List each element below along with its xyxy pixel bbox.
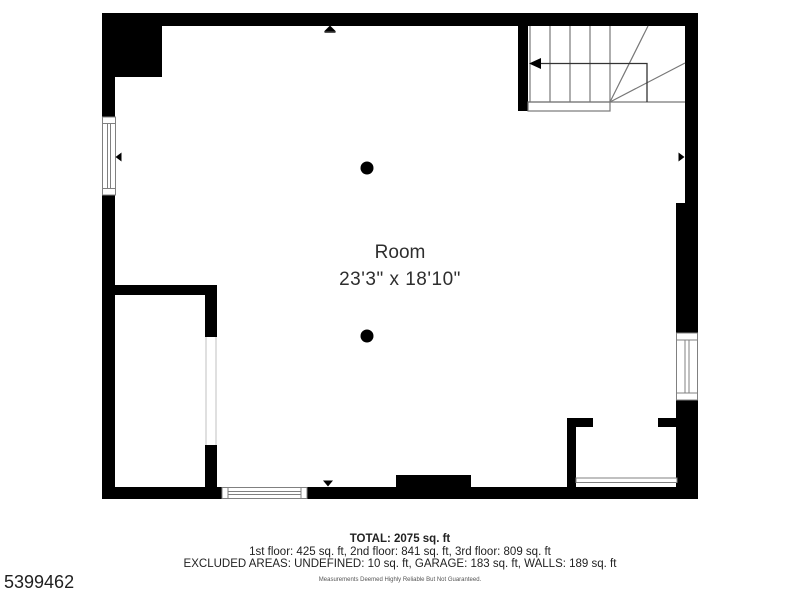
wall-closet-vertical-upper bbox=[205, 295, 217, 337]
wall-stair-left bbox=[518, 23, 528, 111]
window-bottom bbox=[222, 488, 307, 499]
listing-number: 5399462 bbox=[4, 572, 74, 593]
wall-left-upper bbox=[102, 13, 115, 117]
area-summary: TOTAL: 2075 sq. ft 1st floor: 425 sq. ft… bbox=[0, 533, 800, 584]
total-area-text: TOTAL: 2075 sq. ft bbox=[0, 533, 800, 546]
wall-closet-vertical-lower bbox=[205, 445, 217, 487]
wall-bottom-left bbox=[102, 487, 222, 499]
scan-point-dot bbox=[361, 330, 374, 343]
marker-right-icon bbox=[679, 153, 685, 162]
wall-right-lower bbox=[676, 400, 698, 499]
walkline-arrow-icon bbox=[529, 58, 541, 69]
wall-nook-stub-right bbox=[658, 418, 677, 427]
room-name: Room bbox=[250, 239, 550, 266]
stair-lower-step bbox=[528, 102, 610, 111]
scan-point-dot bbox=[361, 162, 374, 175]
floorplan-drawing bbox=[0, 0, 800, 600]
window-left bbox=[103, 117, 116, 195]
excluded-areas-text: EXCLUDED AREAS: UNDEFINED: 10 sq. ft, GA… bbox=[0, 558, 800, 571]
room-dimensions: 23'3" x 18'10" bbox=[250, 266, 550, 293]
closet-opening bbox=[206, 337, 216, 445]
wall-bottom-right bbox=[307, 487, 698, 499]
wall-bottom-bump bbox=[396, 475, 471, 488]
marker-bottom-icon bbox=[323, 481, 333, 487]
wall-top bbox=[102, 13, 698, 26]
staircase bbox=[528, 26, 685, 111]
floor-areas-text: 1st floor: 425 sq. ft, 2nd floor: 841 sq… bbox=[0, 546, 800, 559]
marker-left-icon bbox=[116, 153, 122, 162]
wall-closet-horizontal bbox=[102, 285, 217, 295]
wall-right-mid bbox=[676, 203, 698, 333]
windows bbox=[103, 117, 698, 499]
room-label: Room 23'3" x 18'10" bbox=[250, 239, 550, 293]
marker-top-icon bbox=[324, 26, 336, 32]
nook-sill bbox=[576, 478, 677, 483]
wall-nook-stub-left bbox=[567, 418, 593, 427]
disclaimer-text: Measurements Deemed Highly Reliable But … bbox=[0, 577, 800, 584]
window-right bbox=[677, 333, 698, 400]
wall-left-lower bbox=[102, 195, 115, 499]
marker-top-base bbox=[325, 32, 336, 34]
wall-nook-left bbox=[567, 418, 576, 490]
wall-right-upper bbox=[685, 13, 698, 203]
